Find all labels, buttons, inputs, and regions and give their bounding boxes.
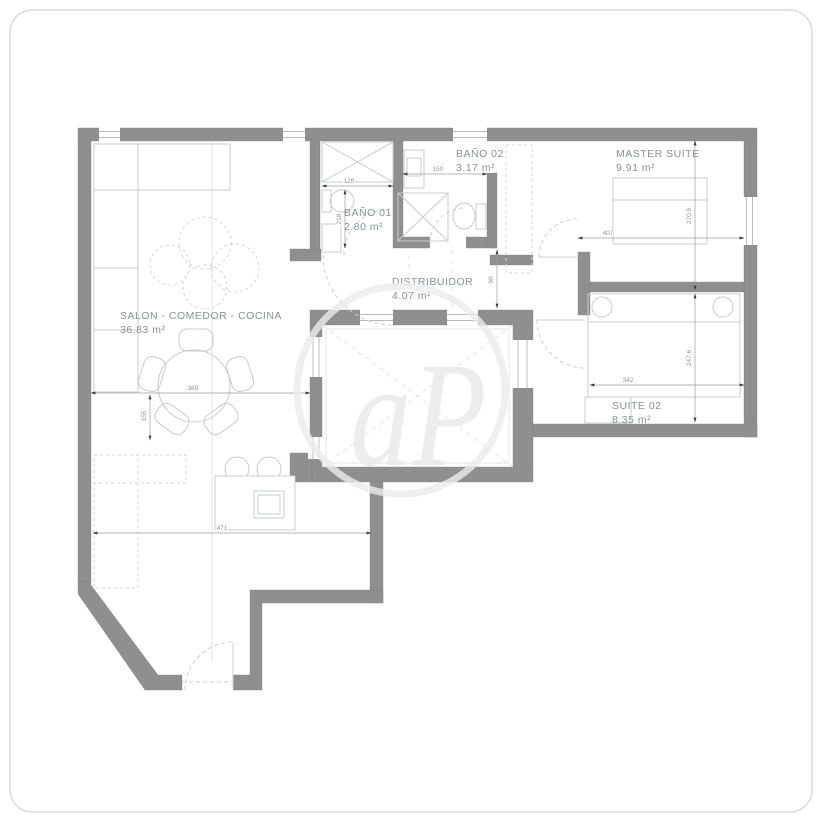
suite02-bed bbox=[588, 294, 740, 397]
dim-distribuidor-depth: 90 bbox=[488, 276, 495, 284]
dim-salon-depth: 155 bbox=[141, 410, 148, 421]
sink bbox=[322, 224, 341, 252]
room-label-bano01: BAÑO 01 bbox=[344, 206, 392, 219]
dim-kitchen-width: 471 bbox=[217, 525, 228, 532]
pillow bbox=[592, 297, 612, 317]
suite02-furniture bbox=[585, 294, 740, 423]
dim-bath2-width: 150 bbox=[433, 166, 444, 173]
dim-salon-width: 389 bbox=[188, 385, 199, 392]
room-area-master: 9.91 m² bbox=[616, 162, 655, 174]
sofa bbox=[94, 144, 230, 392]
plant bbox=[150, 217, 259, 309]
room-label-bano02: BAÑO 02 bbox=[456, 147, 504, 160]
dim-master-depth: 270.5 bbox=[686, 207, 693, 224]
dining-table bbox=[136, 329, 255, 438]
room-label-master: MASTER SUITE bbox=[616, 148, 700, 160]
room-label-salon: SALON - COMEDOR - COCINA bbox=[120, 310, 282, 322]
dim-suite02-depth: 247.6 bbox=[686, 349, 693, 366]
room-area-suite02: 8.35 m² bbox=[612, 414, 651, 426]
room-label-suite02: SUITE 02 bbox=[612, 400, 662, 412]
master-door-arc bbox=[539, 219, 577, 257]
floor-plan-drawing: 389 471 155 120 218 150 90 407 270.5 247… bbox=[0, 0, 822, 822]
entrance-door-arc bbox=[185, 642, 233, 690]
dim-bath1-depth: 218 bbox=[336, 213, 343, 224]
room-area-bano02: 3.17 m² bbox=[456, 162, 495, 174]
master-closet bbox=[506, 145, 532, 273]
master-window bbox=[742, 197, 759, 245]
dim-bath1-width: 120 bbox=[344, 178, 355, 185]
toilet bbox=[453, 203, 475, 229]
suite02-door-arc bbox=[537, 320, 585, 368]
pillow bbox=[713, 297, 733, 317]
dim-suite02-width: 342 bbox=[623, 377, 634, 384]
floor-plan-page: 389 471 155 120 218 150 90 407 270.5 247… bbox=[0, 0, 822, 822]
kitchen-island bbox=[215, 476, 295, 530]
kitchen bbox=[94, 455, 295, 588]
room-area-salon: 36.83 m² bbox=[120, 324, 165, 336]
watermark-logo-text: aP bbox=[350, 332, 487, 498]
room-area-bano01: 2.80 m² bbox=[344, 221, 383, 233]
dim-master-width: 407 bbox=[603, 230, 614, 237]
kitchen-counter bbox=[94, 455, 138, 588]
master-furniture bbox=[506, 145, 707, 273]
toilet-tank bbox=[476, 204, 486, 229]
diagonal-wall bbox=[78, 582, 182, 690]
bath1-fixtures bbox=[322, 142, 393, 252]
